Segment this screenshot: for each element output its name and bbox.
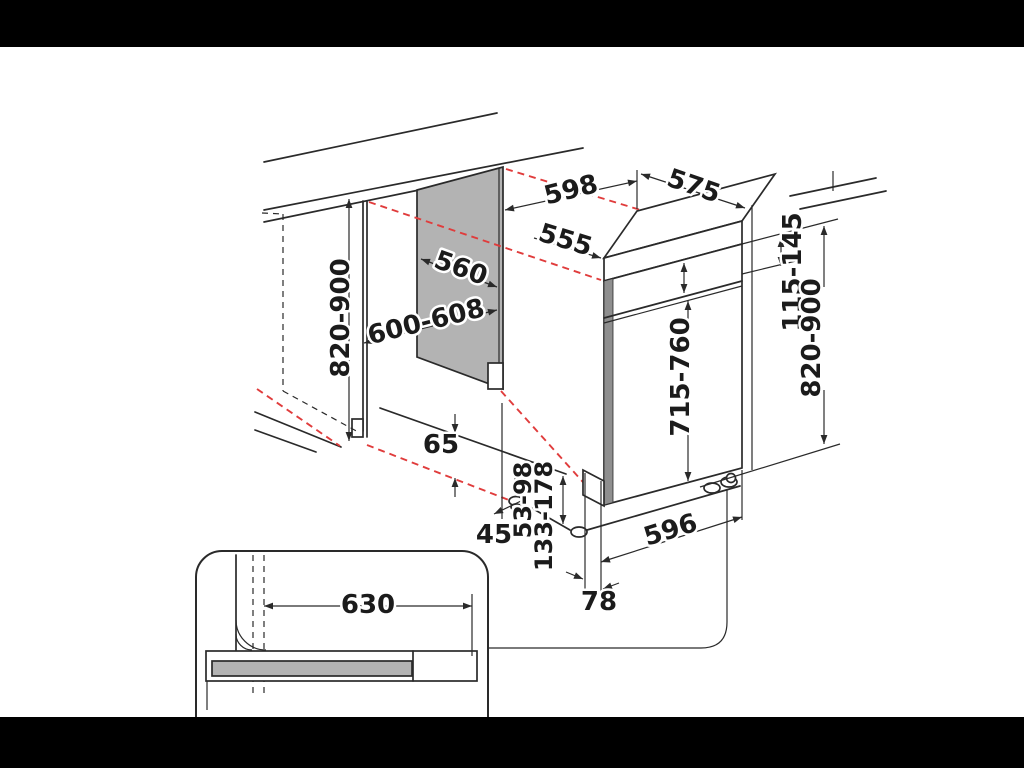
screenshot-stage: 598 575 555 560 600-608 820-900 115-145 … [0, 0, 1024, 768]
plinth-recess-bar [212, 661, 412, 676]
dim-label-45: 45 [476, 520, 512, 550]
dim-label-715-760: 715-760 [666, 317, 696, 436]
dim-label-65: 65 [423, 430, 459, 460]
letterbox-top [0, 0, 1024, 47]
dim-label-820-900-left: 820-900 [326, 258, 356, 377]
dim-label-133-178: 133-178 [530, 461, 558, 571]
dim-label-630: 630 [341, 590, 395, 620]
door-left-edge [604, 279, 613, 506]
drawing-background [0, 47, 1024, 717]
hinge-notch [352, 419, 363, 437]
dim-label-820-900-right: 820-900 [797, 278, 827, 397]
letterbox-bottom [0, 717, 1024, 768]
dim-label-78: 78 [581, 587, 617, 617]
panel-notch [488, 363, 503, 389]
installation-diagram: 598 575 555 560 600-608 820-900 115-145 … [0, 0, 1024, 768]
